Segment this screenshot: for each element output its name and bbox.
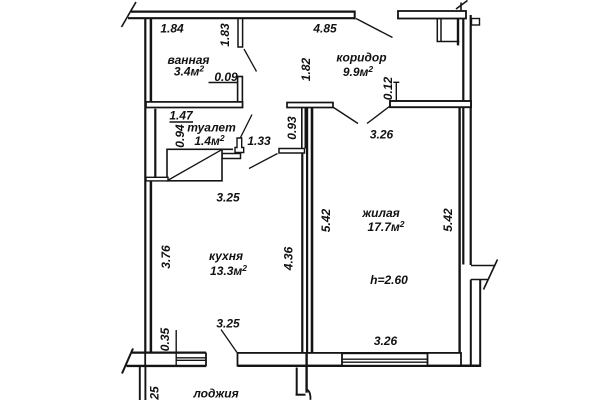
svg-text:5.42: 5.42 — [319, 208, 333, 232]
svg-text:3.25: 3.25 — [216, 191, 240, 205]
svg-text:туалет: туалет — [187, 121, 236, 135]
svg-text:лоджия: лоджия — [192, 387, 238, 400]
svg-text:1.84: 1.84 — [160, 22, 184, 36]
svg-text:0.94: 0.94 — [173, 124, 187, 148]
svg-text:2.25: 2.25 — [148, 386, 162, 400]
svg-text:1.83: 1.83 — [218, 23, 232, 47]
svg-text:4.36: 4.36 — [282, 246, 296, 271]
svg-text:коридор: коридор — [336, 51, 386, 65]
svg-text:5.42: 5.42 — [441, 208, 455, 232]
svg-text:3.26: 3.26 — [374, 334, 398, 348]
svg-text:1.33: 1.33 — [247, 134, 271, 148]
svg-text:h=2.60: h=2.60 — [370, 273, 408, 287]
svg-text:3.4м2: 3.4м2 — [174, 64, 205, 79]
svg-text:1.82: 1.82 — [299, 57, 313, 81]
svg-text:17.7м2: 17.7м2 — [368, 219, 405, 234]
svg-text:1.4м2: 1.4м2 — [194, 133, 225, 148]
svg-text:0.09: 0.09 — [214, 70, 238, 84]
svg-text:кухня: кухня — [209, 249, 243, 263]
svg-text:9.9м2: 9.9м2 — [343, 64, 374, 79]
svg-text:0.35: 0.35 — [158, 327, 172, 351]
svg-text:0.93: 0.93 — [285, 116, 299, 140]
svg-text:3.76: 3.76 — [159, 245, 173, 269]
svg-text:0.12: 0.12 — [381, 76, 395, 100]
svg-text:3.25: 3.25 — [216, 317, 240, 331]
svg-text:4.85: 4.85 — [312, 22, 337, 36]
svg-text:3.26: 3.26 — [370, 128, 394, 142]
svg-text:13.3м2: 13.3м2 — [210, 263, 247, 278]
svg-text:жилая: жилая — [361, 206, 399, 220]
